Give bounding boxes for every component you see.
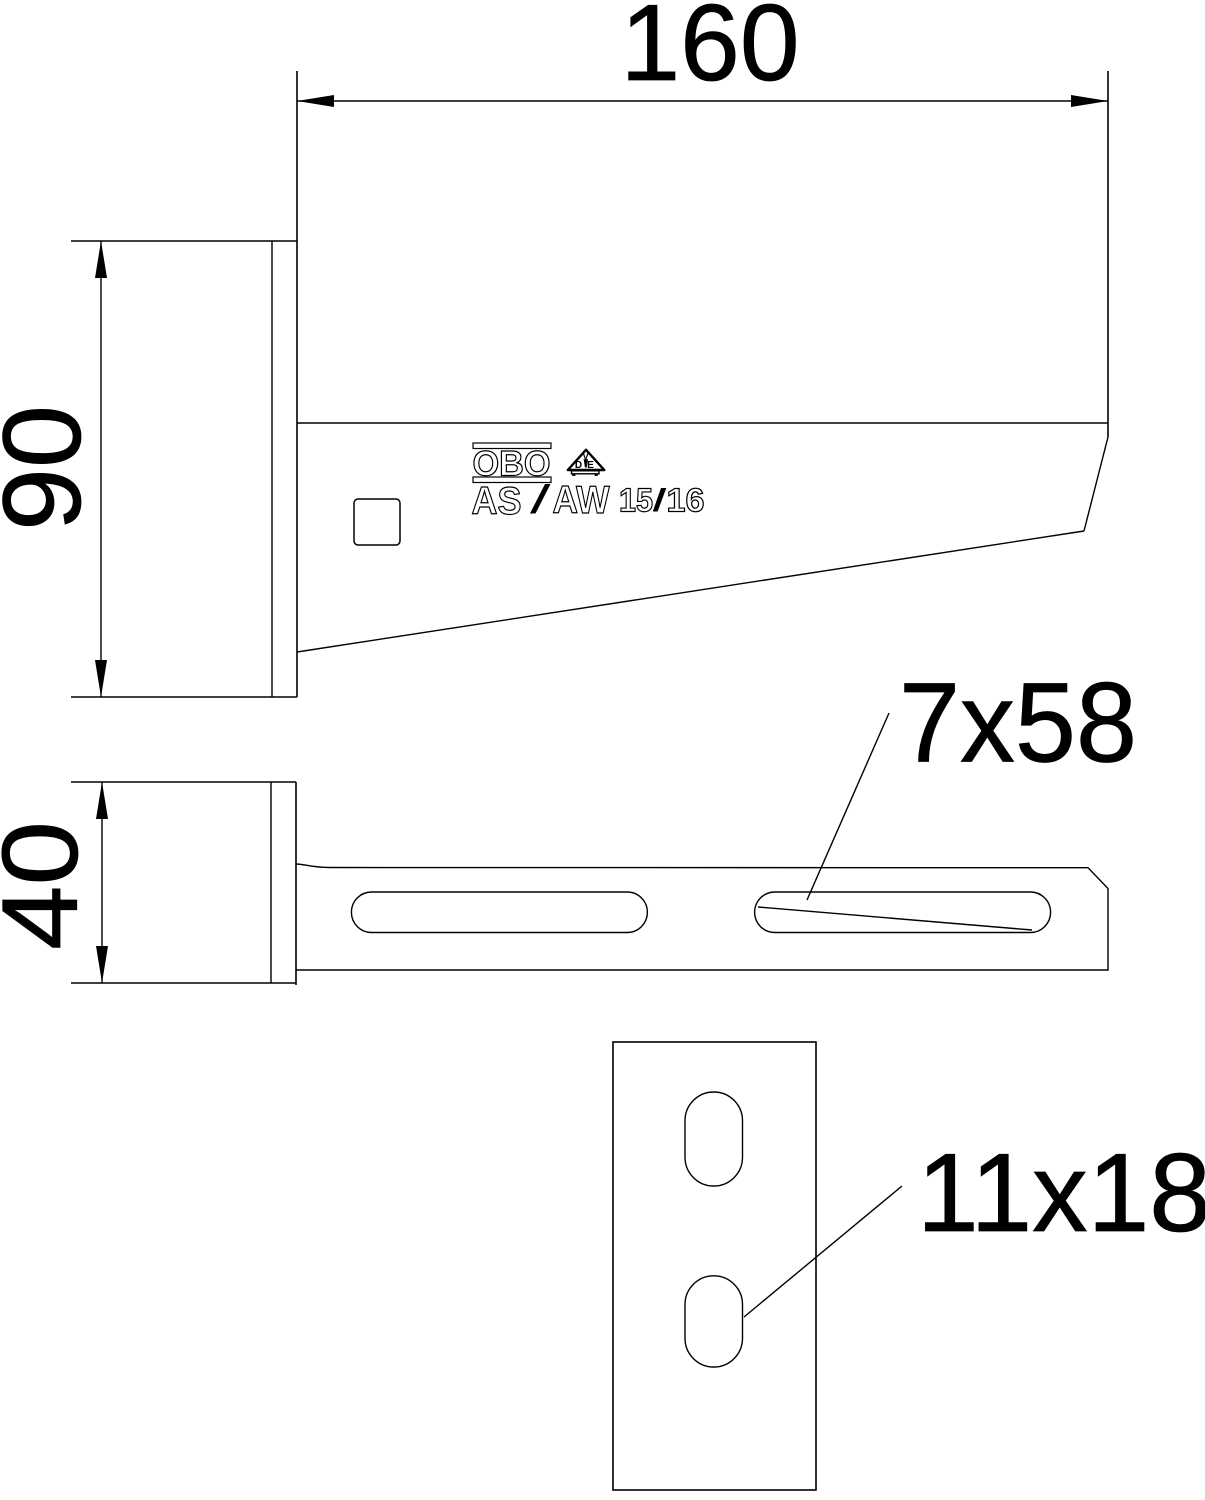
svg-text:11x18: 11x18 bbox=[917, 1131, 1205, 1255]
svg-text:16: 16 bbox=[667, 482, 705, 519]
svg-text:E: E bbox=[587, 460, 594, 471]
svg-text:15: 15 bbox=[619, 482, 653, 519]
svg-text:D: D bbox=[575, 460, 582, 471]
svg-text:40: 40 bbox=[0, 821, 100, 950]
svg-text:AW: AW bbox=[553, 479, 610, 522]
svg-text:AS: AS bbox=[472, 480, 522, 523]
svg-text:7x58: 7x58 bbox=[899, 660, 1137, 786]
svg-text:90: 90 bbox=[0, 405, 104, 531]
svg-text:160: 160 bbox=[621, 0, 800, 104]
